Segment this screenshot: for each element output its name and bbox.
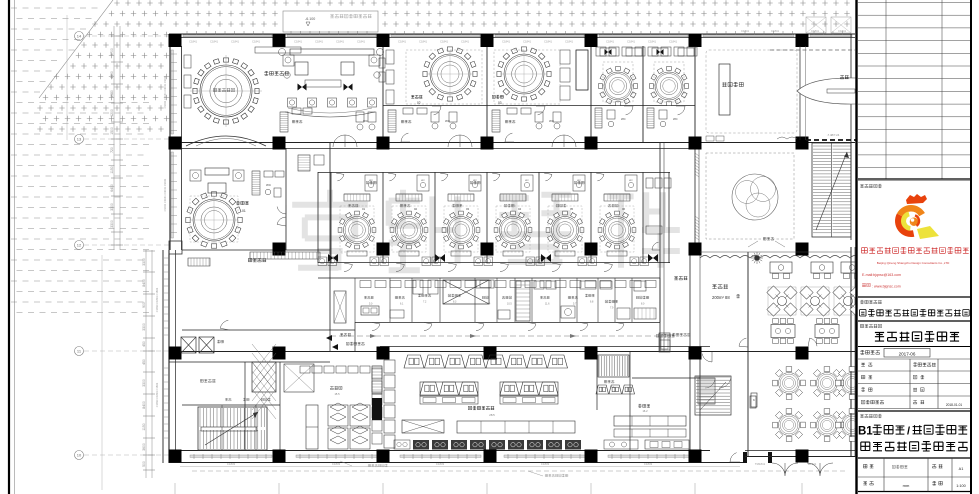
svg-text:04: 04: [518, 207, 522, 211]
svg-text:WC: WC: [629, 180, 633, 182]
svg-text:3300: 3300: [142, 258, 146, 266]
svg-text:C1841: C1841: [669, 40, 677, 44]
svg-text:14: 14: [77, 34, 82, 39]
svg-text:C1841: C1841: [544, 40, 552, 44]
svg-text:TM1841: TM1841: [755, 462, 766, 466]
svg-text:C1841: C1841: [419, 40, 427, 44]
svg-text:1:100: 1:100: [956, 484, 966, 488]
svg-text:C1841: C1841: [461, 40, 469, 44]
svg-text:01: 01: [242, 209, 246, 213]
svg-text:3600: 3600: [142, 443, 146, 451]
svg-text:200m² 88: 200m² 88: [712, 295, 730, 300]
svg-text:720: 720: [110, 147, 114, 153]
svg-text:WC: WC: [445, 119, 451, 123]
svg-text:A1: A1: [959, 467, 964, 471]
svg-text:: www.bjqnsc.com: : www.bjqnsc.com: [872, 285, 901, 289]
svg-text:1500: 1500: [110, 127, 114, 135]
svg-text:C1841: C1841: [440, 40, 448, 44]
svg-text:2017-06: 2017-06: [899, 352, 916, 357]
svg-text:900: 900: [142, 302, 146, 308]
svg-text:C1833: C1833: [332, 462, 341, 466]
svg-text:C1833 C1833 C1833: C1833 C1833 C1833: [155, 287, 159, 312]
svg-text:1150: 1150: [142, 423, 146, 430]
svg-text:3300: 3300: [110, 203, 114, 211]
svg-text:C1833: C1833: [541, 462, 550, 466]
svg-text:C1833: C1833: [436, 462, 445, 466]
svg-text:K: K: [753, 398, 755, 402]
svg-text:16.2: 16.2: [642, 409, 648, 413]
svg-text:WC: WC: [421, 180, 425, 182]
svg-text:C1841: C1841: [231, 40, 239, 44]
svg-text:C1833: C1833: [644, 462, 653, 466]
svg-text:02: 02: [414, 207, 418, 211]
svg-text:2018-01-01: 2018-01-01: [946, 403, 963, 407]
svg-text:B1: B1: [858, 426, 873, 438]
svg-text:C1833: C1833: [227, 462, 236, 466]
svg-text:C1841: C1841: [741, 29, 749, 33]
svg-text:4400: 4400: [110, 71, 114, 79]
svg-text:C3041 C3041 C3041 C3041: C3041 C3041 C3041 C3041: [163, 178, 167, 211]
svg-text:mm: mm: [903, 483, 910, 488]
svg-text:1980: 1980: [110, 90, 114, 98]
svg-text:C1841: C1841: [502, 40, 510, 44]
svg-text:11.6: 11.6: [545, 303, 550, 306]
svg-text:-7.48/7.24: -7.48/7.24: [827, 133, 840, 137]
svg-text:5700: 5700: [110, 48, 114, 56]
svg-text:8400: 8400: [142, 279, 146, 287]
svg-text:C1841: C1841: [189, 40, 197, 44]
svg-text:WC: WC: [549, 119, 555, 123]
svg-text:Beijing Qineng Shangchu Design: Beijing Qineng Shangchu Design Consultan…: [877, 261, 950, 265]
svg-text:02: 02: [417, 101, 421, 105]
svg-text:E-mail:bjqnsc@163.com: E-mail:bjqnsc@163.com: [862, 273, 901, 277]
svg-text:C1841: C1841: [771, 29, 779, 33]
svg-text:C1841: C1841: [336, 40, 344, 44]
svg-text:C1841: C1841: [210, 40, 218, 44]
svg-text:8400: 8400: [142, 401, 146, 409]
svg-text:13: 13: [77, 137, 82, 142]
svg-text:C1841: C1841: [565, 40, 573, 44]
svg-text:06: 06: [622, 207, 626, 211]
svg-text:3300: 3300: [110, 220, 114, 228]
svg-text:C1841: C1841: [606, 40, 614, 44]
svg-text:WC: WC: [266, 183, 272, 187]
svg-text:3300: 3300: [142, 379, 146, 387]
svg-text:1200: 1200: [110, 109, 114, 117]
svg-text:C1833 C1833 C1833: C1833 C1833 C1833: [155, 382, 159, 407]
svg-text:C1841: C1841: [294, 40, 302, 44]
svg-text:/: /: [907, 426, 910, 438]
svg-text:C1841: C1841: [838, 29, 846, 33]
svg-text:6400: 6400: [110, 184, 114, 192]
svg-text:450: 450: [142, 359, 146, 365]
svg-text:C1841: C1841: [811, 29, 819, 33]
svg-text:WC: WC: [363, 119, 369, 123]
svg-text:C1841: C1841: [648, 40, 656, 44]
svg-text:10: 10: [77, 453, 82, 458]
svg-text:3300: 3300: [142, 323, 146, 331]
svg-text:C1841: C1841: [523, 40, 531, 44]
svg-text:C1841: C1841: [315, 40, 323, 44]
svg-text:-6.100: -6.100: [305, 17, 315, 21]
svg-text:15.5: 15.5: [334, 392, 340, 396]
svg-text:C3041 C3041 C3041 C3041: C3041 C3041 C3041 C3041: [163, 75, 167, 108]
svg-text:1150: 1150: [110, 166, 114, 173]
svg-text:03: 03: [466, 207, 470, 211]
svg-text:28.5: 28.5: [489, 413, 495, 417]
svg-text:12: 12: [77, 243, 82, 248]
svg-text:WC: WC: [621, 117, 626, 121]
svg-text:10.5: 10.5: [507, 303, 512, 306]
svg-text:C1841: C1841: [357, 40, 365, 44]
svg-text:500: 500: [142, 461, 146, 467]
svg-text:C1841: C1841: [627, 40, 635, 44]
svg-text:01: 01: [362, 207, 366, 211]
svg-text:05: 05: [570, 207, 574, 211]
svg-text:WC: WC: [525, 180, 529, 182]
svg-text:C1841: C1841: [252, 40, 260, 44]
svg-text:C1841: C1841: [398, 40, 406, 44]
svg-text:WC: WC: [673, 117, 678, 121]
svg-text:450: 450: [142, 341, 146, 347]
svg-text:03: 03: [498, 101, 502, 105]
